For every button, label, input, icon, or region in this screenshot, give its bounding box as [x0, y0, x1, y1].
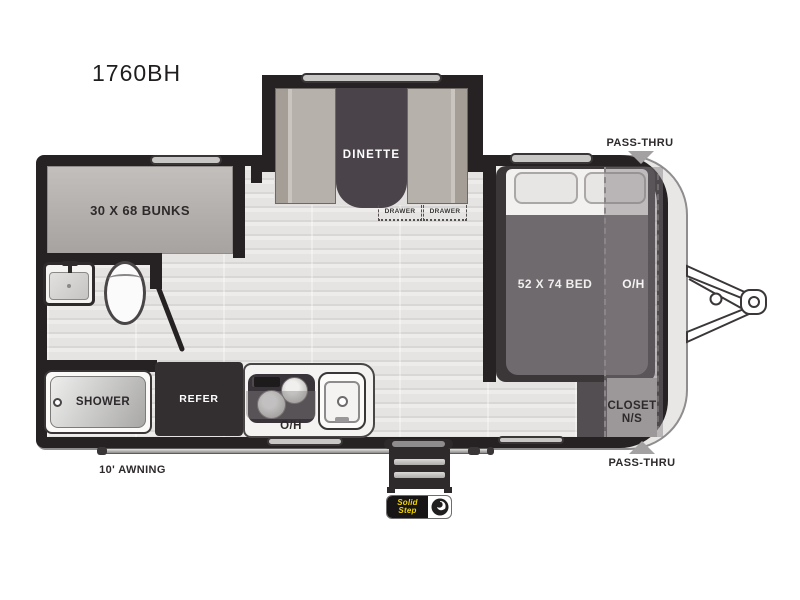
- step-tread: [394, 459, 445, 465]
- toilet-lid-line: [108, 274, 142, 284]
- dinette-table: DINETTE: [336, 88, 407, 208]
- pillow: [514, 172, 578, 204]
- shower-drain-icon: [53, 398, 62, 407]
- entry-steps: [389, 449, 450, 489]
- bunks-label: 30 X 68 BUNKS: [90, 203, 190, 218]
- bedroom-wall: [483, 155, 496, 382]
- slide-window: [301, 73, 442, 83]
- kitchen-overhead-label: O/H: [276, 420, 306, 432]
- floorplan-1760bh: 1760BH 30 X 68 BUNKS DINETTE DRAWER DRAW…: [0, 0, 800, 600]
- step-foot: [387, 487, 395, 493]
- solid-step-logo-text: Solid Step: [387, 496, 428, 518]
- window: [498, 436, 564, 444]
- bath-sink-drain: [67, 284, 71, 288]
- toilet: [104, 261, 146, 325]
- dinette-label: DINETTE: [343, 149, 401, 161]
- slide-right-wall: [467, 75, 483, 172]
- lci-logo-icon: [428, 496, 451, 518]
- step-tread: [394, 472, 445, 478]
- pass-thru-bottom-arrow-icon: [629, 441, 655, 454]
- drawer-label-right: DRAWER: [423, 205, 467, 221]
- drawer-label-left: DRAWER: [378, 205, 422, 221]
- window: [267, 437, 343, 446]
- pass-thru-top-arrow-icon: [628, 151, 654, 164]
- awning-end-cap: [468, 447, 480, 455]
- bunks-area: 30 X 68 BUNKS: [47, 166, 233, 254]
- step-foot: [444, 487, 452, 493]
- closet-label-line1: CLOSET: [604, 400, 660, 413]
- awning-end-cap: [487, 447, 494, 455]
- refer-label: REFER: [179, 393, 219, 405]
- slide-left-stub-wall: [251, 166, 262, 183]
- dinette-bench-left: [275, 88, 336, 204]
- awning-end-cap: [97, 447, 107, 455]
- kitchen-sink-handle: [335, 417, 349, 422]
- bedroom-overhead-label: O/H: [604, 277, 663, 291]
- entry-step-platform-tread: [392, 441, 445, 447]
- closet-label-line2: N/S: [604, 413, 660, 426]
- kitchen-overhead-cabinet-overlay: [246, 391, 316, 419]
- bath-faucet-stem: [68, 265, 72, 273]
- stove-control-panel: [252, 377, 280, 387]
- wardrobe-block: [577, 382, 607, 437]
- window: [510, 153, 593, 164]
- window: [150, 155, 222, 165]
- logo-line2: Step: [398, 507, 416, 515]
- pass-thru-bottom-label: PASS-THRU: [602, 457, 682, 469]
- hitch-a-frame: [687, 266, 766, 342]
- bed-label: 52 X 74 BED: [506, 277, 604, 291]
- pass-thru-top-label: PASS-THRU: [600, 137, 680, 149]
- bedroom-overhead-cabinet-overlay: [604, 167, 663, 437]
- closet-label: CLOSET N/S: [604, 400, 660, 425]
- floorplan-title: 1760BH: [92, 60, 181, 87]
- solid-step-logo: Solid Step: [386, 495, 452, 519]
- refrigerator: REFER: [155, 362, 243, 436]
- slide-left-wall: [262, 75, 276, 172]
- awning-label: 10' AWNING: [85, 464, 180, 476]
- bunks-right-wall: [233, 155, 245, 258]
- dinette-bench-right: [407, 88, 468, 204]
- bath-door-post: [150, 253, 162, 289]
- shower-pan: SHOWER: [50, 376, 146, 428]
- shower-label: SHOWER: [76, 396, 130, 408]
- kitchen-faucet-icon: [337, 396, 348, 407]
